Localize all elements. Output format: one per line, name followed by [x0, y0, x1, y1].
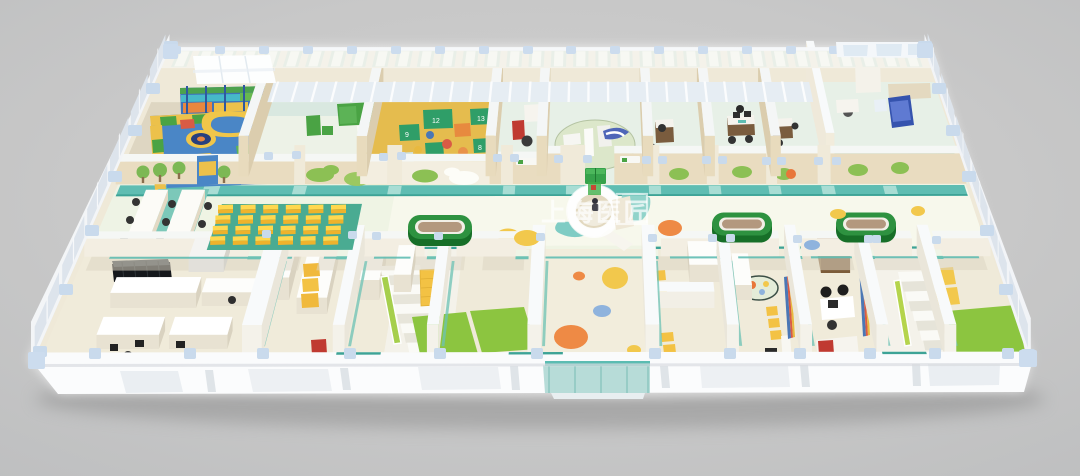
svg-text:13: 13 — [477, 116, 485, 123]
svg-text:12: 12 — [432, 118, 440, 125]
svg-text:9: 9 — [405, 132, 409, 139]
svg-text:8: 8 — [478, 145, 482, 152]
svg-text:上海医匠: 上海医匠 — [541, 198, 651, 227]
